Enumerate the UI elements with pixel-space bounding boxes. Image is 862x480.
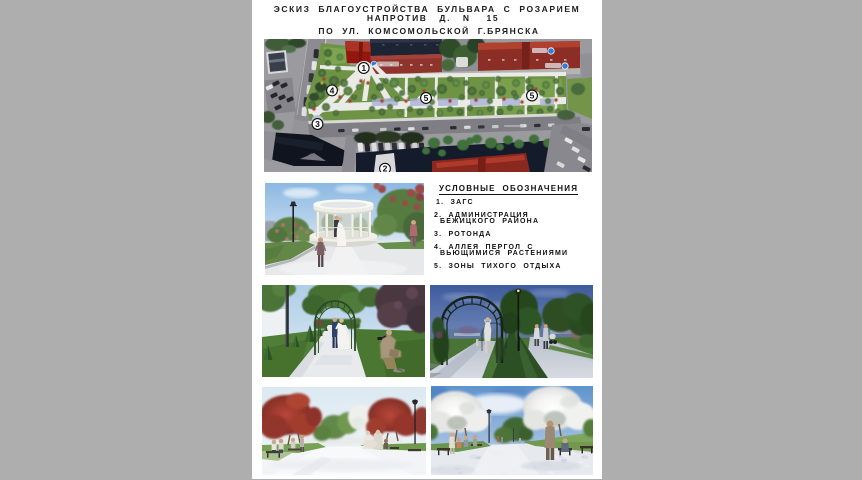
- svg-text:5: 5: [424, 93, 429, 103]
- svg-text:5: 5: [530, 90, 535, 100]
- svg-text:3: 3: [315, 119, 320, 129]
- svg-text:4: 4: [330, 85, 335, 95]
- svg-text:2: 2: [383, 164, 388, 172]
- svg-text:1: 1: [361, 63, 366, 73]
